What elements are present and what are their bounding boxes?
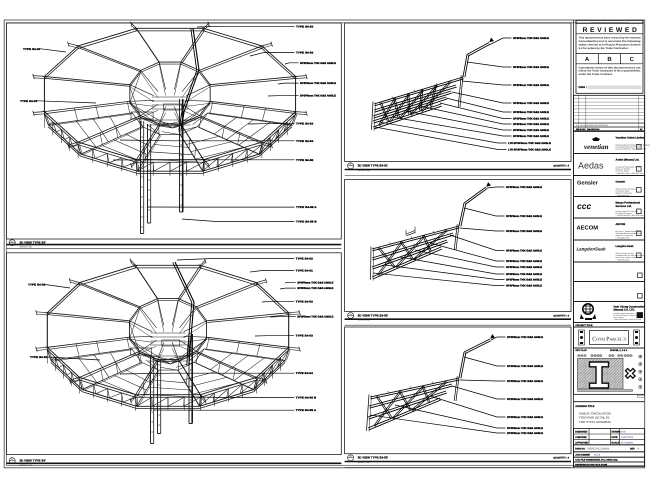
svg-text:SPSF5mm THK G&S ANGLE: SPSF5mm THK G&S ANGLE <box>506 285 542 288</box>
svg-text:DWG NO: DWG NO <box>575 448 585 451</box>
svg-text:L75 SPSF5mm THK G&S ANGLE: L75 SPSF5mm THK G&S ANGLE <box>508 149 551 152</box>
svg-text:T +852 2890 7090: T +852 2890 7090 <box>616 236 630 239</box>
svg-text:515UE_PCJ_05494: 515UE_PCJ_05494 <box>587 448 610 451</box>
svg-text:TYPE S4-03: TYPE S4-03 <box>23 48 41 51</box>
svg-text:TYPE S4-02: TYPE S4-02 <box>296 300 314 303</box>
svg-text:ISSUED FOR APPROVAL: ISSUED FOR APPROVAL <box>587 124 608 127</box>
svg-text:A: A <box>585 56 590 63</box>
svg-text:TYPE S4-05 B: TYPE S4-05 B <box>296 221 317 224</box>
svg-text:CAD FILE NAME:515UE_PCJ_05494: CAD FILE NAME:515UE_PCJ_05494.dwg <box>575 459 618 462</box>
svg-text:DRAWN: DRAWN <box>612 431 621 434</box>
svg-text:SPSF5mm THK G&S ANGLE: SPSF5mm THK G&S ANGLE <box>507 380 543 383</box>
svg-text:PROJECT TITLE: PROJECT TITLE <box>576 324 594 327</box>
svg-text:DESIGNED: DESIGNED <box>575 431 587 434</box>
svg-text:51520: 51520 <box>594 454 601 457</box>
svg-text:3D VIEW TYPE S4-02': 3D VIEW TYPE S4-02' <box>358 313 389 317</box>
svg-text:QUANTITY : 4: QUANTITY : 4 <box>553 457 569 460</box>
svg-text:Langdon Seah: Langdon Seah <box>616 245 634 248</box>
svg-text:(Macau) CO. LTD.: (Macau) CO. LTD. <box>614 309 636 312</box>
svg-text:SCALE 1:50: SCALE 1:50 <box>358 169 371 172</box>
svg-text:SPSF5mm THK G&S ANGLE: SPSF5mm THK G&S ANGLE <box>506 260 542 263</box>
svg-text:REFERENCE DWG FILE NAME: REFERENCE DWG FILE NAME <box>575 463 607 466</box>
svg-text:SPSF5mm THK G&S ANGLE: SPSF5mm THK G&S ANGLE <box>513 111 549 114</box>
svg-text:SPSF5mm THK G&S ANGLE: SPSF5mm THK G&S ANGLE <box>507 432 543 435</box>
svg-text:LangdonSeah: LangdonSeah <box>577 247 606 252</box>
svg-text:SPSF5mm THK G&S ANGLE: SPSF5mm THK G&S ANGLE <box>513 37 549 40</box>
svg-text:SPSF5mm THK G&S ANGLE: SPSF5mm THK G&S ANGLE <box>506 250 542 253</box>
svg-text:AECOM: AECOM <box>577 225 599 232</box>
svg-text:SPSF5mm THK G&S ANGLE: SPSF5mm THK G&S ANGLE <box>513 66 549 69</box>
svg-text:TYPE S4-05 A: TYPE S4-05 A <box>296 409 317 412</box>
svg-text:TYPE S4-05: TYPE S4-05 <box>296 159 314 162</box>
svg-text:TYPE S4-03: TYPE S4-03 <box>296 335 314 338</box>
svg-text:C: C <box>630 56 635 63</box>
svg-text:DO NOT SCALE DRAWING. VERIFY A: DO NOT SCALE DRAWING. VERIFY ALL DIMENSI… <box>590 22 628 24</box>
svg-text:TYPE S4-04: TYPE S4-04 <box>296 372 314 375</box>
svg-text:B: B <box>607 56 612 63</box>
svg-text:TYPE S4-03: TYPE S4-03 <box>296 123 314 126</box>
svg-text:AECOM: AECOM <box>616 223 626 226</box>
svg-text:TYPE S4-01: TYPE S4-01 <box>296 269 314 272</box>
svg-text:TYPE S4-02: TYPE S4-02 <box>20 100 38 103</box>
svg-text:SPSF5mm THK G&S ANGLE: SPSF5mm THK G&S ANGLE <box>297 287 333 290</box>
svg-text:TYPE S4-03: TYPE S4-03 <box>296 25 314 28</box>
svg-text:SPSF5mm THK G&S ANGLE: SPSF5mm THK G&S ANGLE <box>513 102 549 105</box>
svg-text:Aedas: Aedas <box>578 161 604 171</box>
svg-text:QUANTITY : 4: QUANTITY : 4 <box>553 314 569 317</box>
svg-text:3D VIEW TYPE S4-03': 3D VIEW TYPE S4-03' <box>358 456 389 460</box>
svg-text:Gensler: Gensler <box>616 181 626 184</box>
svg-text:SPSF5mm THK G&S ANGLE: SPSF5mm THK G&S ANGLE <box>297 281 333 284</box>
svg-text:SPSF5mm THK G&S ANGLE: SPSF5mm THK G&S ANGLE <box>507 365 543 368</box>
svg-text:SPSF5mm THK G&S ANGLE: SPSF5mm THK G&S ANGLE <box>506 215 542 218</box>
svg-text:SPSF5mm THK G&S ANGLE: SPSF5mm THK G&S ANGLE <box>507 398 543 401</box>
svg-text:SPSF5mm THK G&S ANGLE: SPSF5mm THK G&S ANGLE <box>507 427 543 430</box>
svg-text:CAD: CAD <box>621 431 626 434</box>
svg-text:SCALE 1:50: SCALE 1:50 <box>358 319 371 322</box>
svg-text:SPSF5mm THK G&S ANGLE: SPSF5mm THK G&S ANGLE <box>506 273 542 276</box>
svg-text:REV: REV <box>630 448 635 451</box>
svg-text:SCALE: SCALE <box>612 441 620 444</box>
svg-text:1-MAY-2015: 1-MAY-2015 <box>621 436 634 439</box>
svg-text:5.4 for action by the Trade Co: 5.4 for action by the Trade Contractor. <box>579 47 629 50</box>
svg-text:SCALE 1:50: SCALE 1:50 <box>358 461 371 464</box>
svg-text:SPSF5mm THK G&S ANGLE: SPSF5mm THK G&S ANGLE <box>513 135 549 138</box>
svg-text:REVIEWED: REVIEWED <box>582 27 639 34</box>
svg-text:KEY PLAN: KEY PLAN <box>576 349 587 352</box>
svg-text:JOB NUMBER: JOB NUMBER <box>575 454 590 457</box>
svg-text:Gensler: Gensler <box>577 180 599 187</box>
svg-text:SPSF5mm THK G&S ANGLE: SPSF5mm THK G&S ANGLE <box>297 316 333 319</box>
svg-text:SPSF5mm THK G&S ANGLE: SPSF5mm THK G&S ANGLE <box>507 336 543 339</box>
svg-text:PARCEL 1, 2 & 3: PARCEL 1, 2 & 3 <box>610 349 628 352</box>
svg-text:venetian: venetian <box>584 143 609 151</box>
svg-text:TYPE S4-05 A: TYPE S4-05 A <box>296 206 317 209</box>
svg-text:SCALE 1:50: SCALE 1:50 <box>20 246 33 249</box>
svg-text:SPSF5mm THK G&S ANGLE: SPSF5mm THK G&S ANGLE <box>513 84 549 87</box>
svg-text:TYPE S4-02: TYPE S4-02 <box>28 284 46 287</box>
svg-text:SPSF5mm THK G&S ANGLE: SPSF5mm THK G&S ANGLE <box>513 123 549 126</box>
svg-text:DATE: DATE <box>612 436 619 439</box>
svg-text:DRAWING TITLE: DRAWING TITLE <box>576 405 595 408</box>
svg-text:TYPE S4-03: TYPE S4-03 <box>296 52 314 55</box>
svg-text:APPROVED: APPROVED <box>575 441 588 444</box>
svg-text:AS SHOWN: AS SHOWN <box>621 441 634 444</box>
svg-text:T +852 2830 3500: T +852 2830 3500 <box>616 258 630 261</box>
svg-text:TYPE S4-04: TYPE S4-04 <box>296 140 314 143</box>
svg-text:SPSF5mm THK G&S ANGLE: SPSF5mm THK G&S ANGLE <box>513 129 549 132</box>
svg-text:SPSF5mm THK G&S ANGLE: SPSF5mm THK G&S ANGLE <box>506 266 542 269</box>
svg-text:Date :: Date : <box>579 85 587 89</box>
svg-text:Venetian Orient Limited: Venetian Orient Limited <box>616 137 645 140</box>
svg-text:SPSF5mm THK G&S ANGLE: SPSF5mm THK G&S ANGLE <box>300 62 336 65</box>
svg-text:SPSF5mm THK G&S ANGLE: SPSF5mm THK G&S ANGLE <box>506 278 542 281</box>
svg-text:Services Ltd.: Services Ltd. <box>616 205 632 208</box>
svg-text:SPSF5mm THK G&S ANGLE: SPSF5mm THK G&S ANGLE <box>506 230 542 233</box>
svg-text:3D VIEW TYPE S4': 3D VIEW TYPE S4' <box>20 459 47 463</box>
svg-text:TYPE S4-02: TYPE S4-02 <box>296 258 314 261</box>
svg-text:under the Trade Contract.: under the Trade Contract. <box>579 73 613 76</box>
svg-text:ccc: ccc <box>577 201 591 211</box>
svg-text:DATE: DATE <box>580 128 586 131</box>
svg-text:SPSF5mm THK G&S ANGLE: SPSF5mm THK G&S ANGLE <box>513 118 549 121</box>
svg-text:DESCRIPTION: DESCRIPTION <box>587 128 600 131</box>
svg-text:SCALE 1:50: SCALE 1:50 <box>20 464 33 467</box>
svg-text:TYPE S4-02: TYPE S4-02 <box>30 356 48 359</box>
svg-text:3D VIEW TYPE S4': 3D VIEW TYPE S4' <box>20 240 47 244</box>
svg-text:L75 SPSF5mm THK G&S ANGLE: L75 SPSF5mm THK G&S ANGLE <box>508 142 551 145</box>
svg-text:3D VIEW TYPE S4-01': 3D VIEW TYPE S4-01' <box>358 164 389 168</box>
svg-text:T +853 2878 6625 F +853 2878: T +853 2878 6625 F +853 2878 6626 <box>616 214 644 217</box>
svg-text:FOR STEEL DRAWING: FOR STEEL DRAWING <box>579 420 611 424</box>
svg-text:QUANTITY : 4: QUANTITY : 4 <box>553 165 569 168</box>
svg-text:SPSF5mm THK G&S ANGLE: SPSF5mm THK G&S ANGLE <box>506 186 542 189</box>
svg-text:SPSF5mm THK G&S ANGLE: SPSF5mm THK G&S ANGLE <box>300 95 336 98</box>
svg-text:Aedas (Macau) Ltd.: Aedas (Macau) Ltd. <box>616 159 640 162</box>
svg-text:Executive Offices-L2, Taipa, M: Executive Offices-L2, Taipa, Macau SAR <box>616 148 647 151</box>
svg-text:T +853 2833 1811 F +853 2833: T +853 2833 1811 F +853 2833 1800 <box>616 172 644 175</box>
svg-text:TYPE S4-05 B: TYPE S4-05 B <box>296 396 317 399</box>
svg-text:CHECKED: CHECKED <box>575 436 587 439</box>
svg-text:SPSF5mm THK G&S ANGLE: SPSF5mm THK G&S ANGLE <box>507 416 543 419</box>
svg-text:SPSF5mm THK G&S ANGLE: SPSF5mm THK G&S ANGLE <box>300 82 336 85</box>
